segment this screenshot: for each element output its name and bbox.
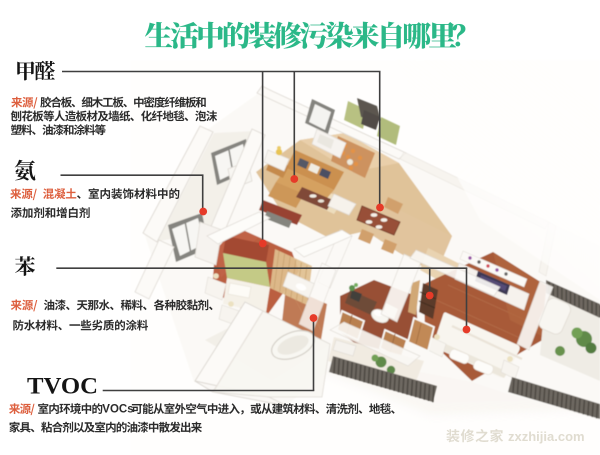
svg-text:TVOC: TVOC — [27, 374, 98, 399]
svg-text:VOCs: VOCs — [102, 404, 133, 416]
svg-text:zxzhijia.com: zxzhijia.com — [508, 429, 585, 444]
